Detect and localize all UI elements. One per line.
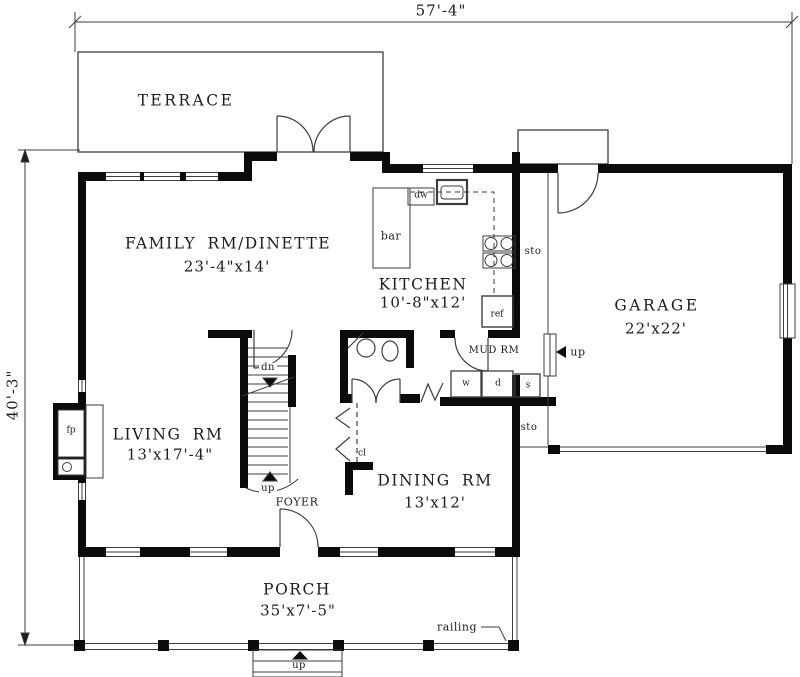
porch-steps-up-label: up [292, 661, 306, 671]
garage-label: GARAGE [614, 298, 699, 314]
garage-up-arrow-icon [556, 346, 566, 358]
bar-label: bar [381, 231, 401, 242]
storage-lower-label: sto [521, 423, 538, 433]
hearth [86, 405, 103, 478]
refrigerator-label: ref [491, 311, 504, 320]
closet-symbols [336, 403, 357, 462]
lavatory [382, 341, 398, 361]
toilet [357, 339, 375, 357]
porch-post [508, 640, 519, 651]
railing-label: railing [437, 622, 477, 633]
bar-counter [373, 188, 410, 268]
stoop-outline [518, 130, 608, 164]
garage-size: 22'x22' [625, 322, 687, 337]
porch-post [158, 640, 169, 651]
kitchen-label: KITCHEN [379, 277, 468, 293]
porch-label: PORCH [263, 582, 331, 598]
kitchen-size: 10'-8"x12' [380, 296, 466, 311]
family-room-label: FAMILY RM/DINETTE [125, 236, 331, 252]
porch-up-arrow-icon [292, 651, 308, 660]
laundry-sink-label: s [526, 382, 531, 391]
living-room-label: LIVING RM [113, 427, 224, 443]
family-room-size: 23'-4"x14' [184, 260, 270, 275]
living-room-size: 13'x17'-4" [127, 448, 213, 463]
storage-upper-label: sto [525, 247, 542, 257]
garage-steps [544, 334, 566, 376]
floor-plan-linework [0, 0, 800, 677]
foyer-label: FOYER [276, 497, 319, 508]
washer-label: w [462, 380, 470, 389]
fireplace-label: fp [66, 427, 75, 436]
fireplace-detail [58, 405, 103, 478]
garage-door-line [560, 447, 766, 452]
terrace-label: TERRACE [138, 93, 235, 109]
stairs-up-arrow-icon [263, 472, 277, 481]
porch-size: 35'x7'-5" [260, 604, 336, 619]
overall-depth-dimension: 40'-3" [6, 370, 21, 421]
mud-room-label: MUD RM [469, 346, 520, 356]
dining-room-size: 13'x12' [404, 496, 466, 511]
stairs-up-label: up [259, 484, 277, 494]
wall-break-symbol [421, 383, 443, 402]
railing-leader-line [481, 627, 506, 641]
garage-steps-up-label: up [570, 347, 585, 358]
overall-width-dimension: 57'-4" [416, 4, 467, 19]
porch-post [248, 640, 259, 651]
dishwasher-label: dw [414, 192, 427, 201]
porch-post [333, 640, 344, 651]
stairs-down-label: dn [259, 363, 277, 373]
floor-plan: 57'-4" 40'-3" TERRACE FAMILY RM/DINETTE … [0, 0, 800, 677]
porch-post [74, 640, 85, 651]
dining-room-label: DINING RM [377, 473, 492, 489]
dryer-label: d [495, 380, 501, 389]
closet-label: cl [358, 450, 366, 459]
stairs-down-arrow-icon [263, 378, 277, 387]
porch-post [423, 640, 434, 651]
